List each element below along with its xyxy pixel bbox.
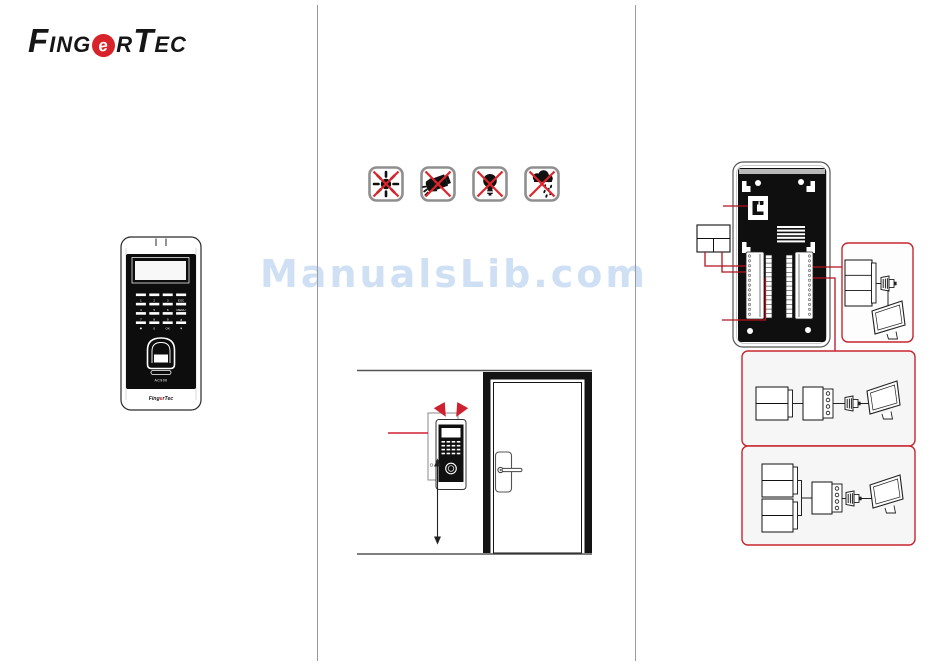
svg-text:2: 2 bbox=[153, 299, 155, 303]
terminal-block-right bbox=[786, 252, 813, 319]
no-direct-sunlight-icon bbox=[368, 166, 404, 202]
svg-text:1: 1 bbox=[140, 299, 142, 303]
svg-text:✱: ✱ bbox=[140, 327, 143, 331]
svg-text:▲: ▲ bbox=[180, 317, 183, 321]
installation-height-diagram bbox=[352, 362, 597, 560]
logo-letter: R bbox=[116, 32, 133, 57]
model-label: AC900 bbox=[155, 379, 168, 383]
column-divider-left bbox=[317, 5, 318, 661]
no-spotlight-icon bbox=[420, 166, 456, 202]
accessory-stack bbox=[845, 260, 876, 306]
device-brand-label: FingerTec bbox=[149, 396, 174, 402]
svg-text:5: 5 bbox=[153, 308, 155, 312]
svg-text:3: 3 bbox=[167, 299, 169, 303]
no-bulb-light-icon bbox=[472, 166, 508, 202]
svg-text:▼: ▼ bbox=[180, 327, 183, 331]
door bbox=[483, 372, 592, 553]
column-divider-right bbox=[635, 5, 636, 661]
svg-text:8: 8 bbox=[153, 317, 155, 321]
logo-letter: EC bbox=[154, 32, 187, 57]
svg-text:7: 7 bbox=[140, 317, 142, 321]
svg-text:4: 4 bbox=[140, 308, 142, 312]
warning-icons-row bbox=[368, 166, 560, 202]
logo-letter: F bbox=[28, 22, 49, 59]
logo-e-badge: e bbox=[90, 32, 117, 59]
converter-box bbox=[812, 482, 842, 514]
terminal-block-left bbox=[746, 252, 772, 319]
accessory-stack bbox=[756, 387, 793, 420]
logo-letter: T bbox=[133, 22, 154, 59]
rear-panel-wiring-diagram bbox=[660, 148, 950, 560]
mounted-device bbox=[436, 420, 466, 490]
svg-text:6: 6 bbox=[167, 308, 169, 312]
svg-text:ESC: ESC bbox=[178, 299, 185, 303]
power-supply-box bbox=[697, 225, 730, 252]
lcd-screen bbox=[135, 261, 186, 280]
ac900-device-front-illustration: 123ESC456MENU789▲✱0OK▼ AC900 FingerTec bbox=[118, 234, 208, 416]
manualslib-watermark: ManualsLib.com bbox=[260, 255, 648, 293]
rear-panel bbox=[733, 162, 830, 347]
svg-text:9: 9 bbox=[167, 317, 169, 321]
converter-box bbox=[803, 387, 833, 420]
connection-option-3 bbox=[742, 446, 915, 545]
connection-option-1 bbox=[842, 243, 913, 342]
logo-letter: ING bbox=[49, 32, 91, 57]
fingertec-logo: FINGeRTEC bbox=[28, 22, 187, 60]
svg-text:0: 0 bbox=[153, 327, 155, 331]
connection-option-2 bbox=[742, 351, 915, 446]
svg-text:MENU: MENU bbox=[177, 308, 186, 312]
rj45-port bbox=[748, 196, 768, 220]
no-rain-icon bbox=[524, 166, 560, 202]
